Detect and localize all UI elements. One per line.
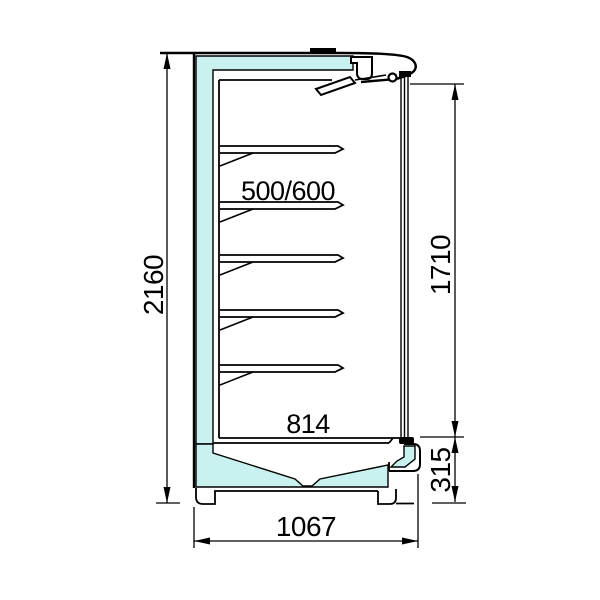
glass-top-fitting <box>399 71 411 77</box>
hinge-pin <box>389 74 397 82</box>
label-shelf-depth: 500/600 <box>241 176 335 206</box>
dim-label-overall-height: 2160 <box>138 255 169 315</box>
label-inner-depth: 814 <box>286 409 330 439</box>
glass-bottom-fitting <box>399 437 414 444</box>
right-leg <box>378 489 396 504</box>
dim-label-display-height: 1710 <box>425 235 456 295</box>
dim-label-base-height: 315 <box>425 447 456 492</box>
top-notch <box>310 48 336 54</box>
drawing-svg: 2160 1710 315 1067 50 <box>0 0 600 600</box>
technical-drawing-refrigerated-cabinet-side-view: 2160 1710 315 1067 50 <box>0 0 600 600</box>
drawing-background <box>0 0 600 600</box>
dim-label-overall-depth: 1067 <box>276 511 336 542</box>
